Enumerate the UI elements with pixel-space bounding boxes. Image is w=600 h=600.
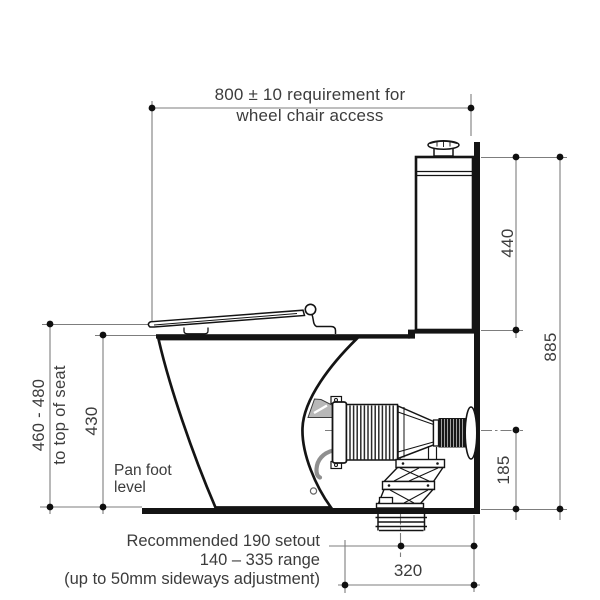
pan-foot-line1: Pan foot bbox=[114, 463, 172, 480]
seat-height-note: to top of seat bbox=[50, 365, 71, 465]
dim-430-label: 430 bbox=[82, 406, 102, 435]
setout-notes: Recommended 190 setout 140 – 335 range (… bbox=[16, 532, 320, 589]
toilet-installation-diagram: 800 ± 10 requirement for wheel chair acc… bbox=[0, 0, 600, 600]
floor-outlet-pipe bbox=[376, 513, 428, 531]
outlet-wall-flange bbox=[465, 407, 477, 459]
flexible-outlet-connector bbox=[331, 397, 477, 469]
seat-buffer bbox=[184, 328, 208, 334]
seat-height-label: 460 - 480 to top of seat bbox=[29, 365, 71, 465]
dim-800-label-line1: 800 ± 10 requirement for bbox=[170, 85, 450, 105]
setout-note-line3: (up to 50mm sideways adjustment) bbox=[16, 570, 320, 589]
floor-line bbox=[142, 508, 480, 514]
pan-foot-line2: level bbox=[114, 480, 172, 497]
dim-320-label: 320 bbox=[377, 561, 439, 581]
setout-note-line2: 140 – 335 range bbox=[16, 551, 320, 570]
cistern bbox=[416, 141, 473, 330]
pan-foot-level-label: Pan foot level bbox=[114, 463, 172, 496]
dim-800-label-line2: wheel chair access bbox=[170, 106, 450, 126]
seat-hinge bbox=[305, 304, 315, 314]
dim-440-label: 440 bbox=[498, 228, 518, 257]
wall-line bbox=[474, 142, 480, 513]
setout-note-line1: Recommended 190 setout bbox=[16, 532, 320, 551]
pan-installation-bracket bbox=[377, 460, 445, 509]
dim-885-label: 885 bbox=[541, 332, 561, 361]
seat-height-range: 460 - 480 bbox=[29, 365, 50, 465]
toilet-pan bbox=[159, 339, 357, 508]
toilet-seat bbox=[148, 304, 335, 334]
dim-185-label: 185 bbox=[494, 455, 514, 484]
flush-button bbox=[428, 141, 459, 156]
